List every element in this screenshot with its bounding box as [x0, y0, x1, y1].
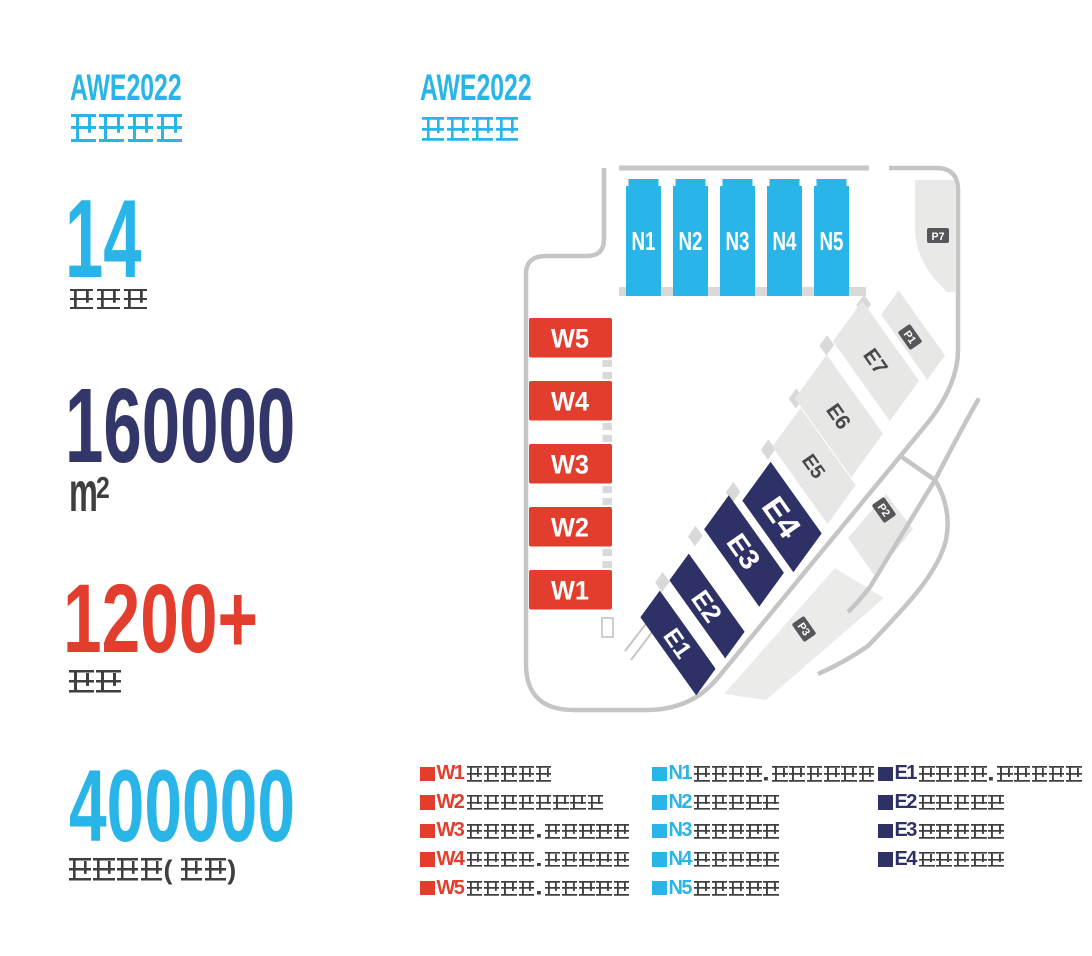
svg-text:W2: W2	[551, 512, 589, 542]
svg-text:N5: N5	[820, 226, 844, 256]
svg-text:W5: W5	[551, 323, 589, 353]
svg-text:P7: P7	[932, 231, 945, 243]
svg-text:N4: N4	[773, 226, 797, 256]
svg-text:W3: W3	[551, 449, 589, 479]
svg-text:N1: N1	[632, 226, 656, 256]
svg-text:W1: W1	[551, 575, 589, 605]
svg-text:W4: W4	[551, 386, 589, 416]
svg-text:N3: N3	[726, 226, 750, 256]
svg-text:N2: N2	[679, 226, 703, 256]
